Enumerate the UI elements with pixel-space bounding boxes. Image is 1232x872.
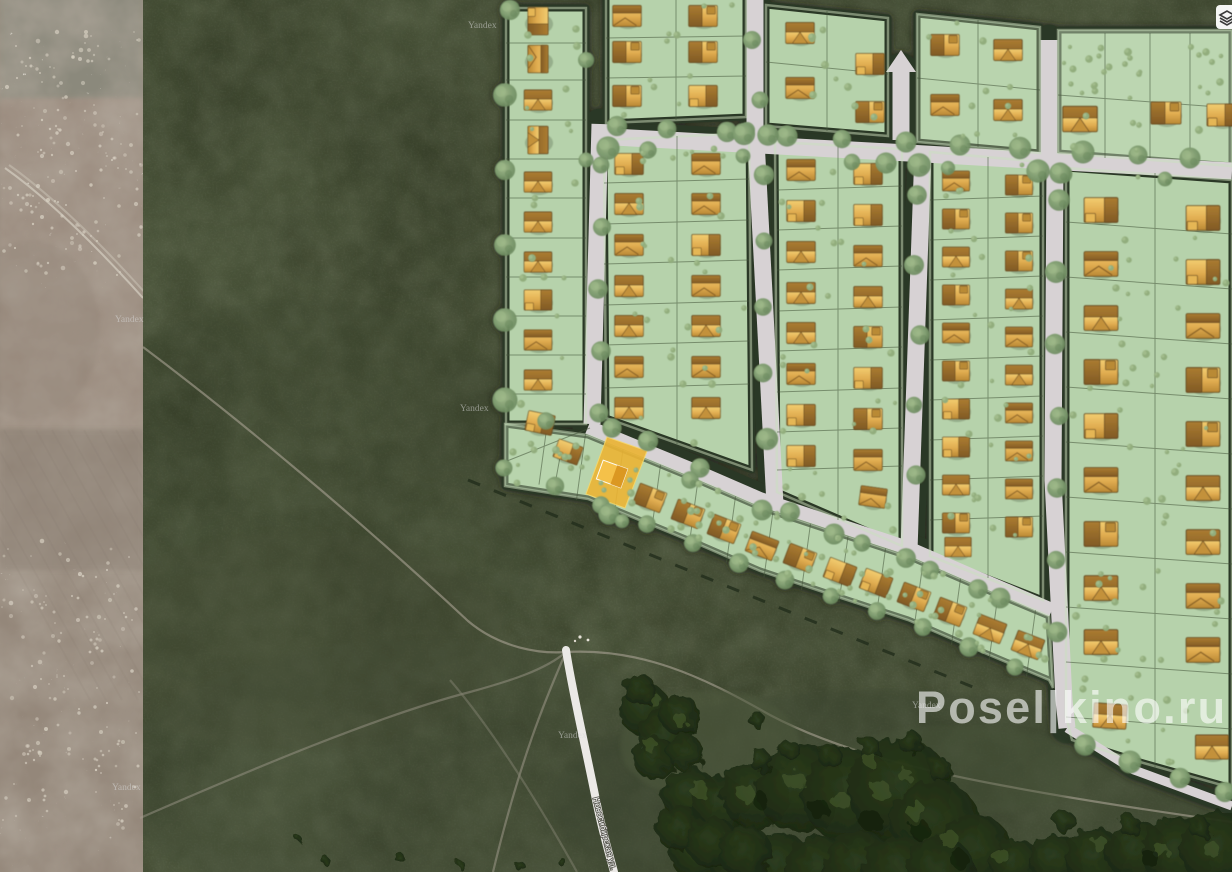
svg-text:Yandex: Yandex (112, 783, 141, 793)
svg-text:Yandex: Yandex (460, 404, 489, 414)
svg-text:Yandex: Yandex (115, 315, 144, 325)
svg-text:Yandex: Yandex (558, 731, 587, 741)
svg-text:Yandex: Yandex (468, 21, 497, 31)
svg-text:Posel|kino.ru: Posel|kino.ru (916, 682, 1227, 734)
